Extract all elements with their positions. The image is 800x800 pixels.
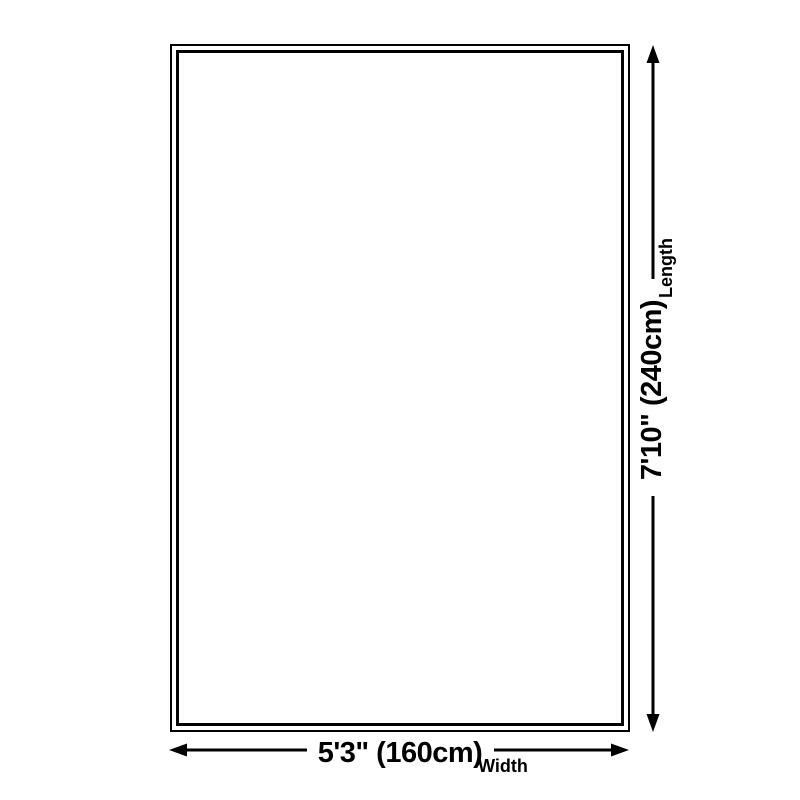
rug-outline-outer [170, 44, 630, 732]
arrow-right-icon [611, 744, 629, 757]
arrow-up-icon [647, 45, 660, 63]
width-label: Width [453, 755, 553, 777]
rug-outline-inner [176, 50, 624, 726]
arrow-left-icon [169, 744, 187, 757]
arrow-down-icon [647, 714, 660, 732]
length-label: Length [654, 208, 678, 328]
rug-size-diagram: 5'3" (160cm) Width 7'10" (240cm) Length [0, 0, 800, 800]
